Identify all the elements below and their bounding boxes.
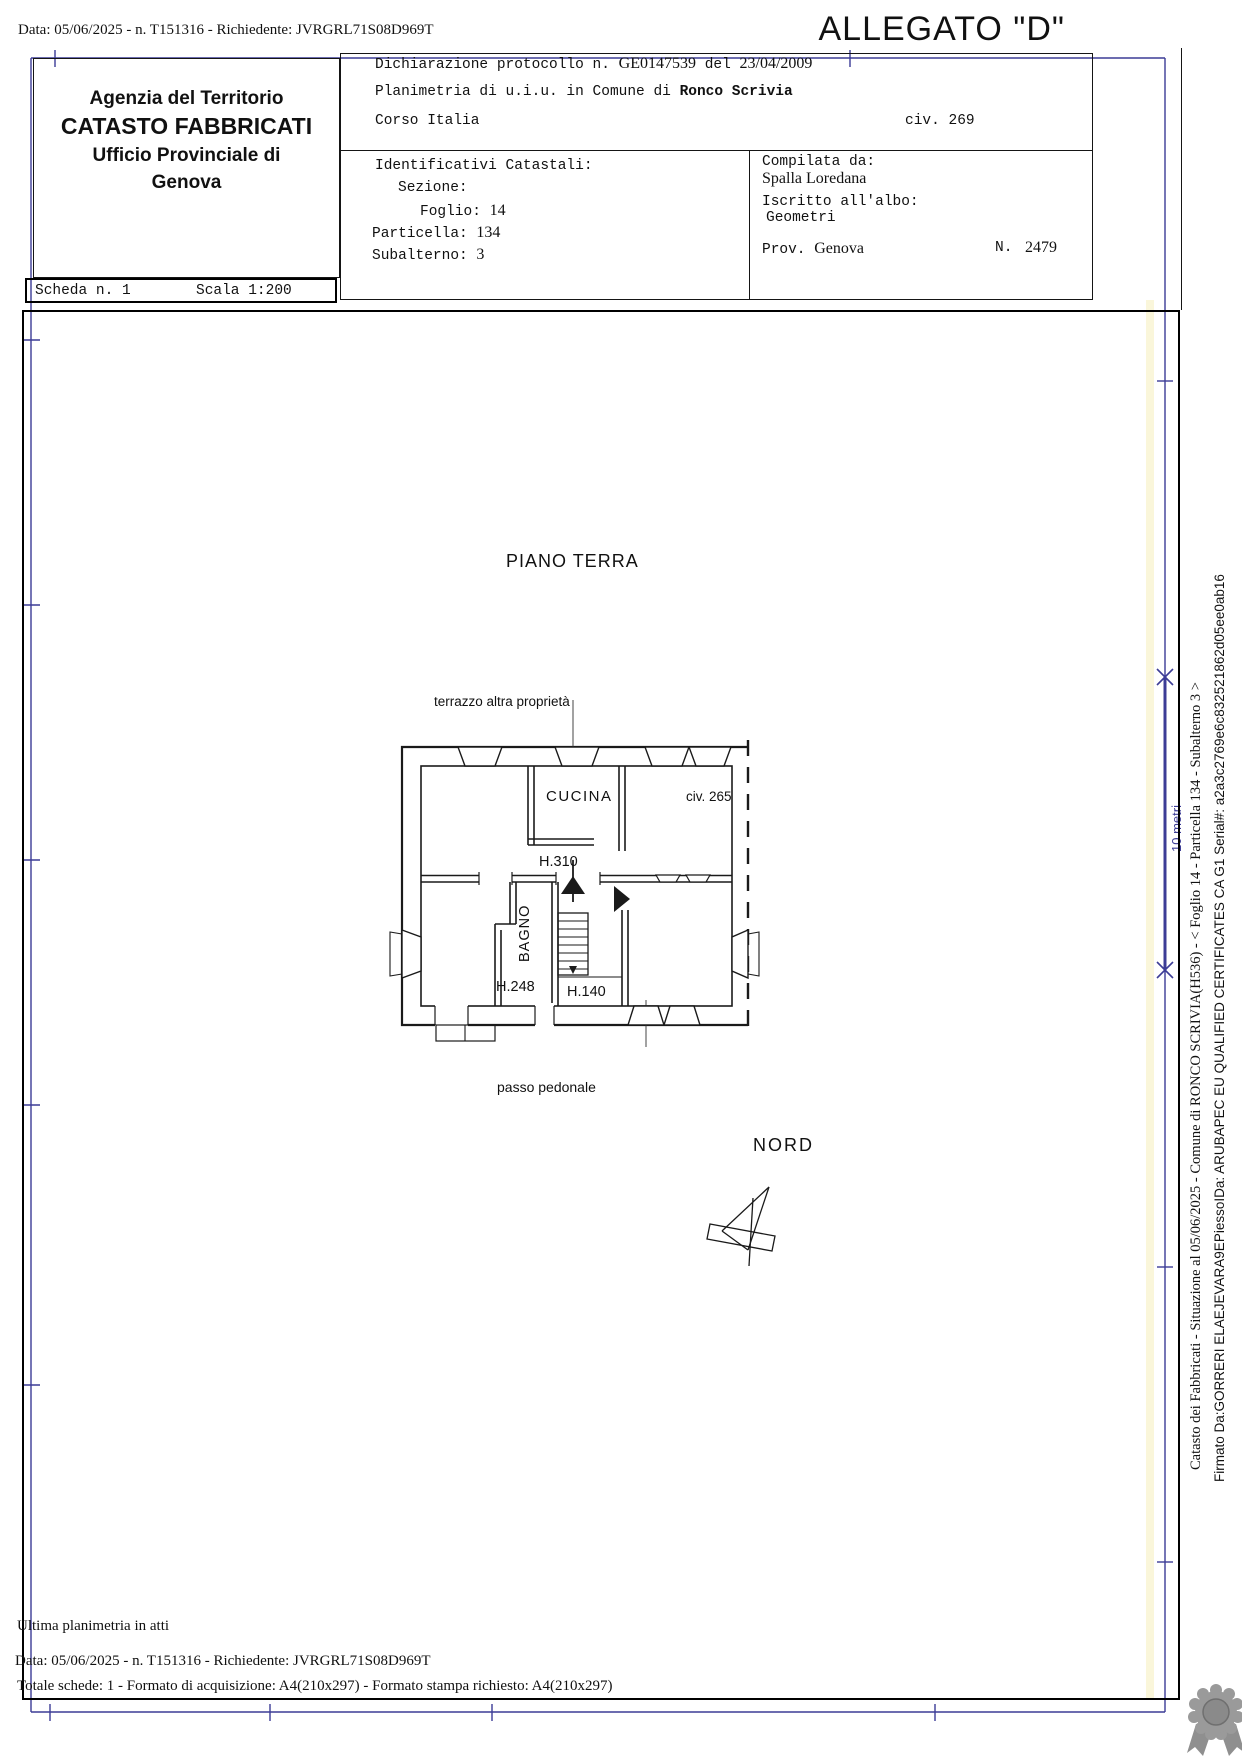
particella-label: Particella: <box>372 226 468 242</box>
height-310-label: H.310 <box>539 854 578 870</box>
height-248-label: H.248 <box>496 979 535 995</box>
scanned-cadastral-document: 10 metri <box>0 0 1242 1756</box>
prov-value: Genova <box>814 240 864 257</box>
subalterno-row: Subalterno: 3 <box>372 246 484 264</box>
agency-city: Genova <box>33 172 340 194</box>
allegato-title: ALLEGATO "D" <box>790 10 1065 49</box>
margin-catasto-line: Catasto dei Fabbricati - Situazione al 0… <box>1188 682 1205 1470</box>
terrace-label: terrazzo altra proprietà <box>434 694 570 709</box>
foglio-label: Foglio: <box>420 204 481 220</box>
kitchen-label: CUCINA <box>546 788 613 805</box>
protocol-number: GE0147539 <box>619 55 696 72</box>
prov-row: Prov. Genova <box>762 240 864 258</box>
planimetria-comune: Ronco Scrivia <box>680 84 793 100</box>
protocol-date: 23/04/2009 <box>740 55 813 72</box>
footer-data-line: Data: 05/06/2025 - n. T151316 - Richiede… <box>15 1653 431 1670</box>
foglio-row: Foglio: 14 <box>420 202 506 220</box>
protocol-del: del <box>705 57 731 73</box>
civico-265-label: civ. 265 <box>686 789 732 804</box>
right-margin-line <box>1181 48 1182 310</box>
height-140-label: H.140 <box>567 984 606 1000</box>
planimetria-label: Planimetria di u.i.u. in Comune di <box>375 84 671 100</box>
drawing-box <box>22 310 1180 1700</box>
request-header-line: Data: 05/06/2025 - n. T151316 - Richiede… <box>18 22 434 39</box>
declaration-divider-h <box>340 150 1093 151</box>
civico-value: civ. 269 <box>905 113 975 129</box>
foglio-value: 14 <box>490 202 506 219</box>
albo-value: Geometri <box>766 210 836 226</box>
albo-label: Iscritto all'albo: <box>762 194 919 210</box>
albo-num-value: 2479 <box>1025 239 1057 257</box>
albo-num-label: N. <box>995 240 1012 256</box>
agency-name: Agenzia del Territorio <box>33 88 340 110</box>
margin-signature-line: Firmato Da:GORRERI ELAEJEVARA9EPiessoIDa… <box>1212 574 1227 1482</box>
subalterno-value: 3 <box>476 246 484 263</box>
compilata-name: Spalla Loredana <box>762 170 866 188</box>
sezione-row: Sezione: <box>398 180 468 196</box>
planimetria-line: Planimetria di u.i.u. in Comune di Ronco… <box>375 84 793 100</box>
protocol-label: Dichiarazione protocollo n. <box>375 57 610 73</box>
floor-title: PIANO TERRA <box>506 551 639 572</box>
particella-value: 134 <box>476 224 500 241</box>
scheda-scala: Scala 1:200 <box>196 283 292 299</box>
identificativi-title: Identificativi Catastali: <box>375 158 593 174</box>
pedestrian-path-label: passo pedonale <box>497 1079 596 1095</box>
north-label: NORD <box>753 1135 814 1156</box>
signature-seal-icon <box>1187 1684 1242 1756</box>
bathroom-label: BAGNO <box>517 905 533 962</box>
scheda-number: Scheda n. 1 <box>35 283 131 299</box>
particella-row: Particella: 134 <box>372 224 500 242</box>
agency-provincial: Ufficio Provinciale di <box>33 145 340 167</box>
subalterno-label: Subalterno: <box>372 248 468 264</box>
declaration-divider-v <box>749 150 750 300</box>
street-line: Corso Italia <box>375 113 479 129</box>
agency-office: CATASTO FABBRICATI <box>33 113 340 140</box>
protocol-line: Dichiarazione protocollo n. GE0147539 de… <box>375 55 812 73</box>
totale-schede-line: Totale schede: 1 - Formato di acquisizio… <box>17 1678 613 1695</box>
ultima-planimetria-line: Ultima planimetria in atti <box>17 1618 169 1635</box>
prov-label: Prov. <box>762 242 806 258</box>
compilata-label: Compilata da: <box>762 154 875 170</box>
